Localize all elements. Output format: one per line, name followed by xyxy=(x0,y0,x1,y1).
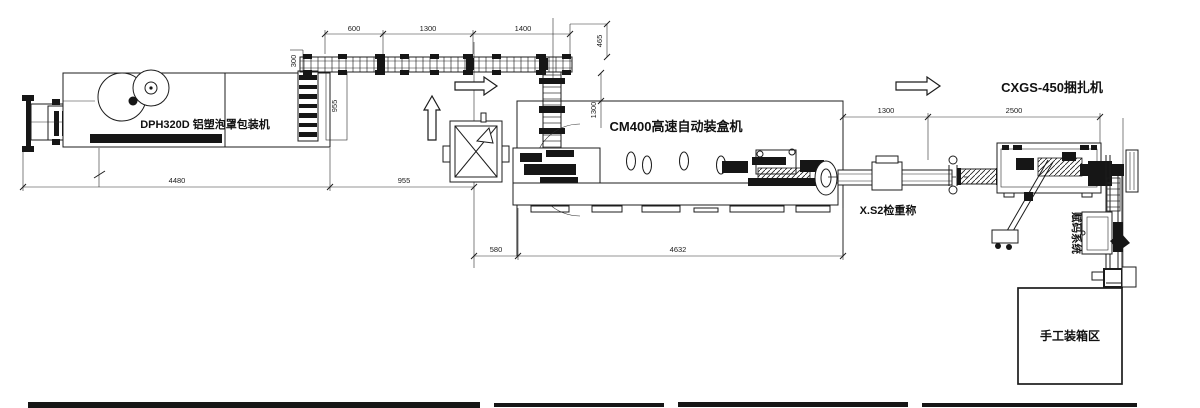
dim-4632: 4632 xyxy=(670,245,687,254)
blister-machine-label: DPH320D 铝塑泡罩包装机 xyxy=(140,117,270,131)
flow-arrow-right-1 xyxy=(455,77,497,95)
strapper-infeed-belt xyxy=(960,169,998,184)
cartoner-label: CM400高速自动装盒机 xyxy=(610,119,743,134)
machine-base-bar xyxy=(90,134,222,143)
carton-rollers xyxy=(627,152,726,174)
drop-chute-box xyxy=(1104,269,1122,287)
layout-drawing-canvas: DPH320D 铝塑泡罩包装机 955 300 xyxy=(0,0,1200,408)
dim-600: 600 xyxy=(348,24,361,33)
dim-4480: 4480 xyxy=(169,176,186,185)
cartoner-machine: CM400高速自动装盒机 1300 xyxy=(471,70,846,260)
strapper-label: CXGS-450捆扎机 xyxy=(1001,80,1103,95)
riser-column xyxy=(298,71,318,141)
dim-1400: 1400 xyxy=(515,24,532,33)
checkweigher-label: X.S2检重称 xyxy=(860,203,917,217)
dim-955: 955 xyxy=(398,176,411,185)
weigh-cell xyxy=(872,162,902,190)
outfeed-and-coding: 赋码系统 xyxy=(1070,150,1138,287)
dim-580: 580 xyxy=(490,245,503,254)
flow-arrow-up xyxy=(424,96,440,140)
dim-1300: 1300 xyxy=(420,24,437,33)
cartoner-feet xyxy=(531,206,830,212)
manual-packing-area: 手工装箱区 xyxy=(1018,288,1122,384)
dim-465: 465 xyxy=(595,35,604,48)
bottom-dimension-chain: 580 4632 xyxy=(471,208,846,260)
checkweigher: X.S2检重称 xyxy=(828,156,1000,217)
dim-right-1300: 1300 xyxy=(878,106,895,115)
station-tab-left xyxy=(443,146,450,162)
conveyor-belt xyxy=(300,57,572,72)
left-dimension-chain: 4480 955 xyxy=(20,148,477,191)
guide-roller xyxy=(129,97,138,106)
cartoner-bed xyxy=(513,183,838,205)
station-tab-right xyxy=(502,146,509,162)
coding-system-label: 赋码系统 xyxy=(1070,212,1083,254)
elevator-column xyxy=(1126,150,1138,192)
layout-drawing-page: DPH320D 铝塑泡罩包装机 955 300 xyxy=(0,0,1200,408)
dim-infeed-1300: 1300 xyxy=(589,102,598,119)
flow-arrow-right-2 xyxy=(896,77,940,95)
blister-machine: DPH320D 铝塑泡罩包装机 955 300 xyxy=(22,50,347,152)
manual-packing-label: 手工装箱区 xyxy=(1040,328,1100,343)
coding-system-box xyxy=(1082,212,1112,254)
drop-chute-box-2 xyxy=(1122,267,1136,287)
dim-riser-955: 955 xyxy=(330,100,339,113)
dim-riser-300: 300 xyxy=(289,55,298,68)
outfeed-stub xyxy=(1092,272,1104,280)
cropped-drawing-band xyxy=(28,402,1137,408)
dim-2500: 2500 xyxy=(1006,106,1023,115)
top-conveyor: 600 1300 1400 465 xyxy=(300,21,610,75)
elevator-carriage xyxy=(1107,178,1120,211)
transfer-station xyxy=(443,113,509,182)
outfeed-tee xyxy=(1080,164,1124,176)
